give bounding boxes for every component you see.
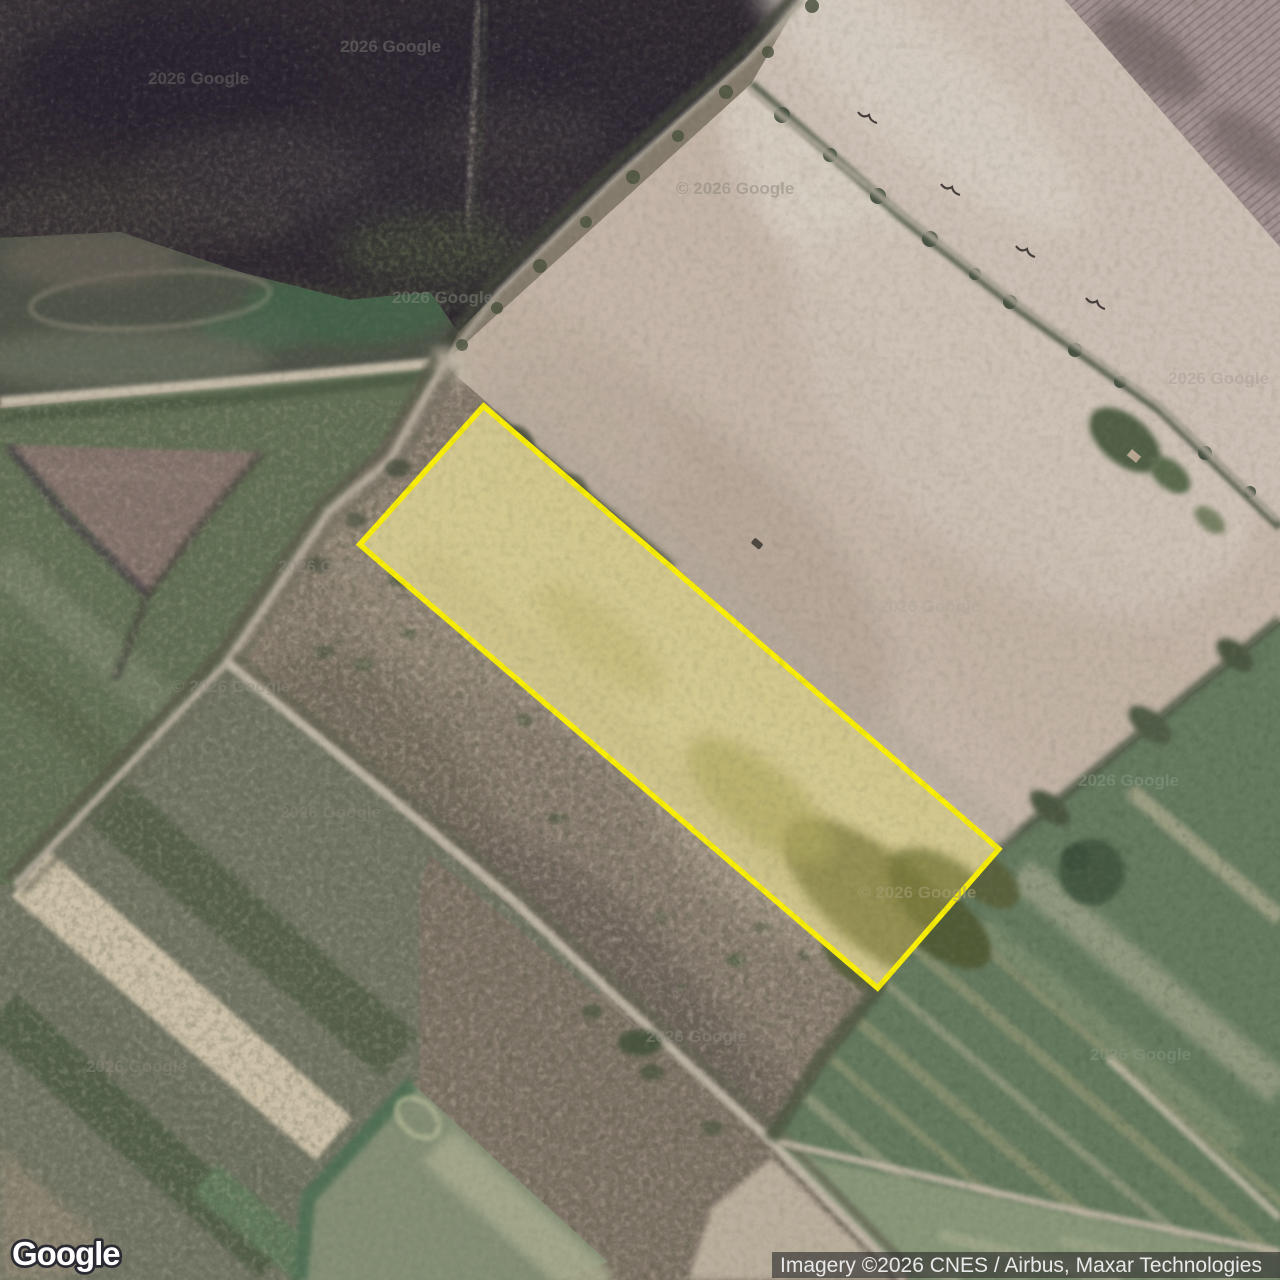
svg-text:Imagery ©2026 CNES / Airbus, M: Imagery ©2026 CNES / Airbus, Maxar Techn…: [780, 1254, 1262, 1277]
svg-text:2026 Google: 2026 Google: [1168, 369, 1269, 388]
svg-text:2026 Google: 2026 Google: [340, 37, 441, 56]
svg-text:2026 Google: 2026 Google: [1090, 1045, 1191, 1064]
svg-text:2026 Google: 2026 Google: [1078, 771, 1179, 790]
svg-text:2026 Google: 2026 Google: [280, 803, 381, 822]
svg-text:© 2026 Google: © 2026 Google: [172, 677, 290, 696]
svg-text:© 2026 Google: © 2026 Google: [858, 883, 976, 902]
svg-text:2026 Google: 2026 Google: [148, 69, 249, 88]
svg-text:2026 Google: 2026 Google: [86, 1057, 187, 1076]
svg-text:Google: Google: [12, 1235, 120, 1272]
svg-text:2026 Google: 2026 Google: [646, 1027, 747, 1046]
svg-text:2026 Google: 2026 Google: [278, 557, 379, 576]
svg-text:© 2026 Google: © 2026 Google: [862, 597, 980, 616]
svg-text:2026 Google: 2026 Google: [392, 288, 493, 307]
svg-text:© 2026 Google: © 2026 Google: [676, 179, 794, 198]
